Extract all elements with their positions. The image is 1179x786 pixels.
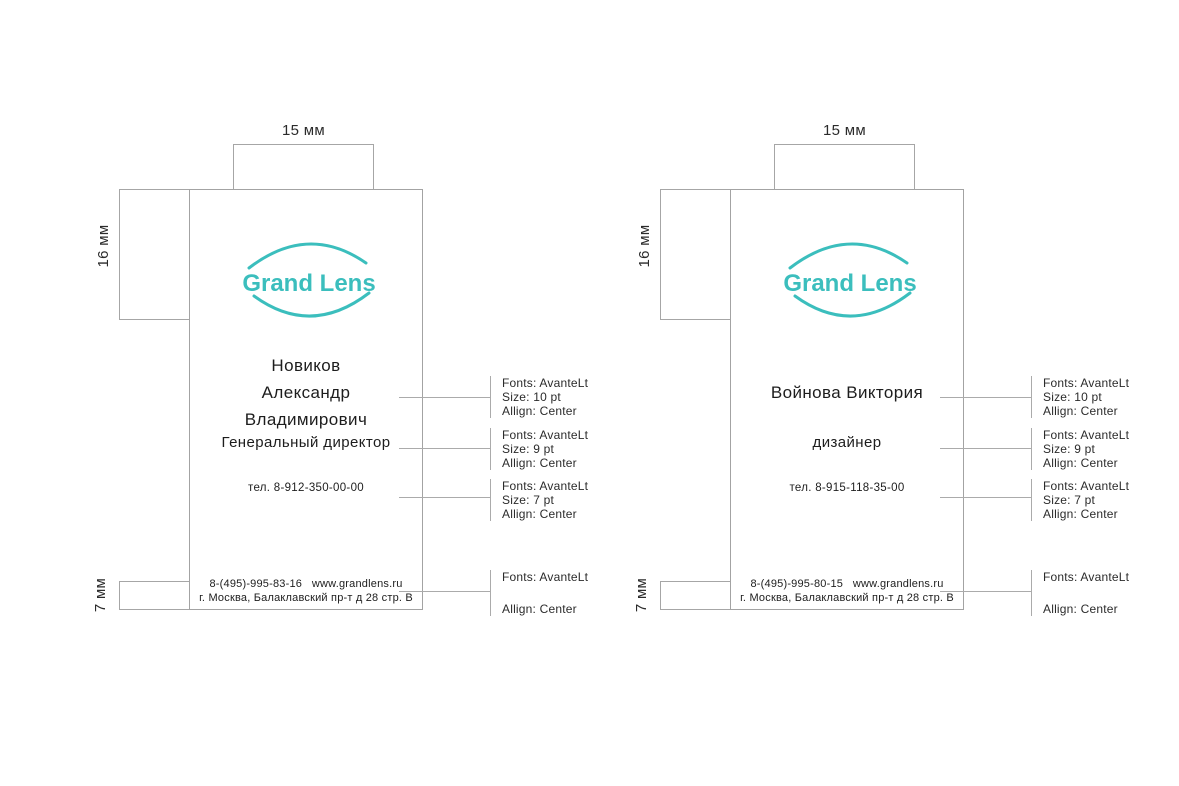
dimension-label-bottom: 7 мм — [93, 565, 109, 625]
leader-line-title — [399, 448, 490, 449]
dimension-line — [119, 189, 120, 319]
dimension-label-left: 16 мм — [637, 216, 653, 276]
dimension-line — [660, 189, 661, 319]
card-phone: тел. 8-915-118-35-00 — [731, 475, 963, 501]
annotation-font: Fonts: AvanteLt — [502, 479, 632, 493]
annotation-font: Fonts: AvanteLt — [502, 570, 632, 584]
annotation-phone: Fonts: AvanteLt Size: 7 pt Allign: Cente… — [490, 479, 632, 521]
grand-lens-logo: Grand Lens — [237, 240, 377, 322]
card-job-title: Генеральный директор — [190, 428, 422, 456]
annotation-footer: Fonts: AvanteLt Allign: Center — [1031, 570, 1173, 616]
dimension-label-top: 15 мм — [233, 122, 374, 139]
leader-line-footer — [940, 591, 1031, 592]
dimension-line — [660, 609, 730, 610]
grand-lens-logo: Grand Lens — [778, 240, 918, 322]
business-card: Grand Lens Войнова Виктория дизайнер тел… — [730, 189, 964, 610]
annotation-align: Allign: Center — [502, 507, 632, 521]
dimension-label-left: 16 мм — [96, 216, 112, 276]
annotation-font: Fonts: AvanteLt — [502, 428, 632, 442]
logo-upper-arc-icon — [790, 244, 907, 268]
dimension-label-top: 15 мм — [774, 122, 915, 139]
annotation-size: Size: 9 pt — [1043, 442, 1173, 456]
annotation-align: Allign: Center — [502, 404, 632, 418]
card-footer-contacts: 8-(495)-995-80-15 www.grandlens.ru г. Мо… — [731, 570, 963, 612]
annotation-size: Size: 10 pt — [502, 390, 632, 404]
annotation-align: Allign: Center — [1043, 602, 1173, 616]
annotation-align: Allign: Center — [502, 602, 632, 616]
leader-line-name — [399, 397, 490, 398]
annotation-title: Fonts: AvanteLt Size: 9 pt Allign: Cente… — [490, 428, 632, 470]
dimension-label-bottom: 7 мм — [634, 565, 650, 625]
dimension-line — [233, 144, 374, 145]
leader-line-title — [940, 448, 1031, 449]
annotation-font: Fonts: AvanteLt — [502, 376, 632, 390]
annotation-phone: Fonts: AvanteLt Size: 7 pt Allign: Cente… — [1031, 479, 1173, 521]
annotation-font: Fonts: AvanteLt — [1043, 570, 1173, 584]
leader-line-footer — [399, 591, 490, 592]
annotation-size: Size: 7 pt — [1043, 493, 1173, 507]
annotation-align: Allign: Center — [1043, 404, 1173, 418]
leader-line-phone — [940, 497, 1031, 498]
leader-line-phone — [399, 497, 490, 498]
logo-upper-arc-icon — [249, 244, 366, 268]
logo-wordmark: Grand Lens — [242, 270, 375, 297]
dimension-line — [119, 189, 189, 190]
dimension-line — [119, 581, 189, 582]
annotation-name: Fonts: AvanteLt Size: 10 pt Allign: Cent… — [1031, 376, 1173, 418]
business-card: Grand Lens Новиков Александр Владимирови… — [189, 189, 423, 610]
dimension-line — [774, 144, 915, 145]
dimension-line — [660, 581, 730, 582]
design-spec-canvas: 15 мм 16 мм 7 мм Grand Lens Новиков Алек… — [0, 0, 1179, 786]
annotation-align: Allign: Center — [502, 456, 632, 470]
annotation-font: Fonts: AvanteLt — [1043, 428, 1173, 442]
annotation-font: Fonts: AvanteLt — [1043, 376, 1173, 390]
logo-wordmark: Grand Lens — [783, 270, 916, 297]
card-phone: тел. 8-912-350-00-00 — [190, 475, 422, 501]
card-job-title: дизайнер — [731, 428, 963, 456]
dimension-line — [660, 581, 661, 610]
card-footer-contacts: 8-(495)-995-83-16 www.grandlens.ru г. Мо… — [190, 570, 422, 612]
annotation-title: Fonts: AvanteLt Size: 9 pt Allign: Cente… — [1031, 428, 1173, 470]
dimension-line — [119, 609, 189, 610]
annotation-name: Fonts: AvanteLt Size: 10 pt Allign: Cent… — [490, 376, 632, 418]
annotation-align: Allign: Center — [1043, 507, 1173, 521]
annotation-size: Size: 7 pt — [502, 493, 632, 507]
leader-line-name — [940, 397, 1031, 398]
dimension-line — [119, 581, 120, 610]
annotation-align: Allign: Center — [1043, 456, 1173, 470]
annotation-footer: Fonts: AvanteLt Allign: Center — [490, 570, 632, 616]
annotation-size: Size: 10 pt — [1043, 390, 1173, 404]
annotation-font: Fonts: AvanteLt — [1043, 479, 1173, 493]
dimension-line — [660, 189, 730, 190]
annotation-size: Size: 9 pt — [502, 442, 632, 456]
